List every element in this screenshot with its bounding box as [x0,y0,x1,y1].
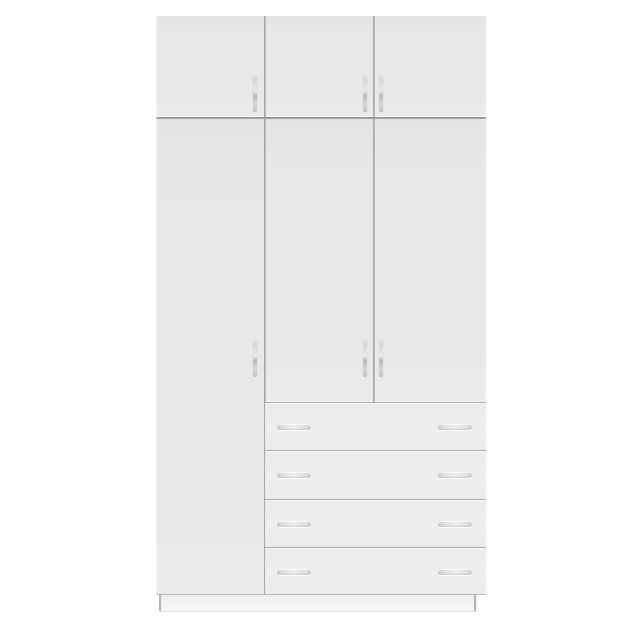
wardrobe-door-left [156,119,265,595]
door-middle-handle [363,340,367,377]
drawer-4-handle-left [277,569,311,575]
top-cabinet-door-2 [265,16,374,117]
door-left-handle [253,340,257,377]
wardrobe-door-middle [265,119,374,402]
wardrobe-product-image [156,16,487,613]
drawer-2-handle-right [438,472,472,478]
top-door-2-handle [363,75,367,112]
foot-right [474,595,476,611]
drawer-3-handle-left [277,521,311,527]
drawer-4 [265,547,487,595]
foot-left [159,595,161,611]
drawer-1 [265,402,487,450]
top-door-gap-line-1 [264,16,266,117]
plinth [160,595,478,612]
drawer-2-handle-left [277,472,311,478]
top-cabinet-door-3 [374,16,487,117]
drawer-2 [265,450,487,498]
top-cabinet-door-1 [156,16,265,117]
wardrobe-door-right [374,119,487,402]
top-door-gap-line-2 [373,16,375,117]
top-door-1-handle [253,75,257,112]
drawer-4-handle-right [438,569,472,575]
drawer-3-handle-right [438,521,472,527]
main-door-gap-line-2 [373,119,375,402]
drawer-1-handle-right [438,424,472,430]
drawer-3 [265,499,487,547]
product-image-canvas [0,0,642,642]
drawer-1-handle-left [277,424,311,430]
door-right-handle [379,340,383,377]
drawer-stack [265,402,487,595]
top-door-3-handle [379,75,383,112]
